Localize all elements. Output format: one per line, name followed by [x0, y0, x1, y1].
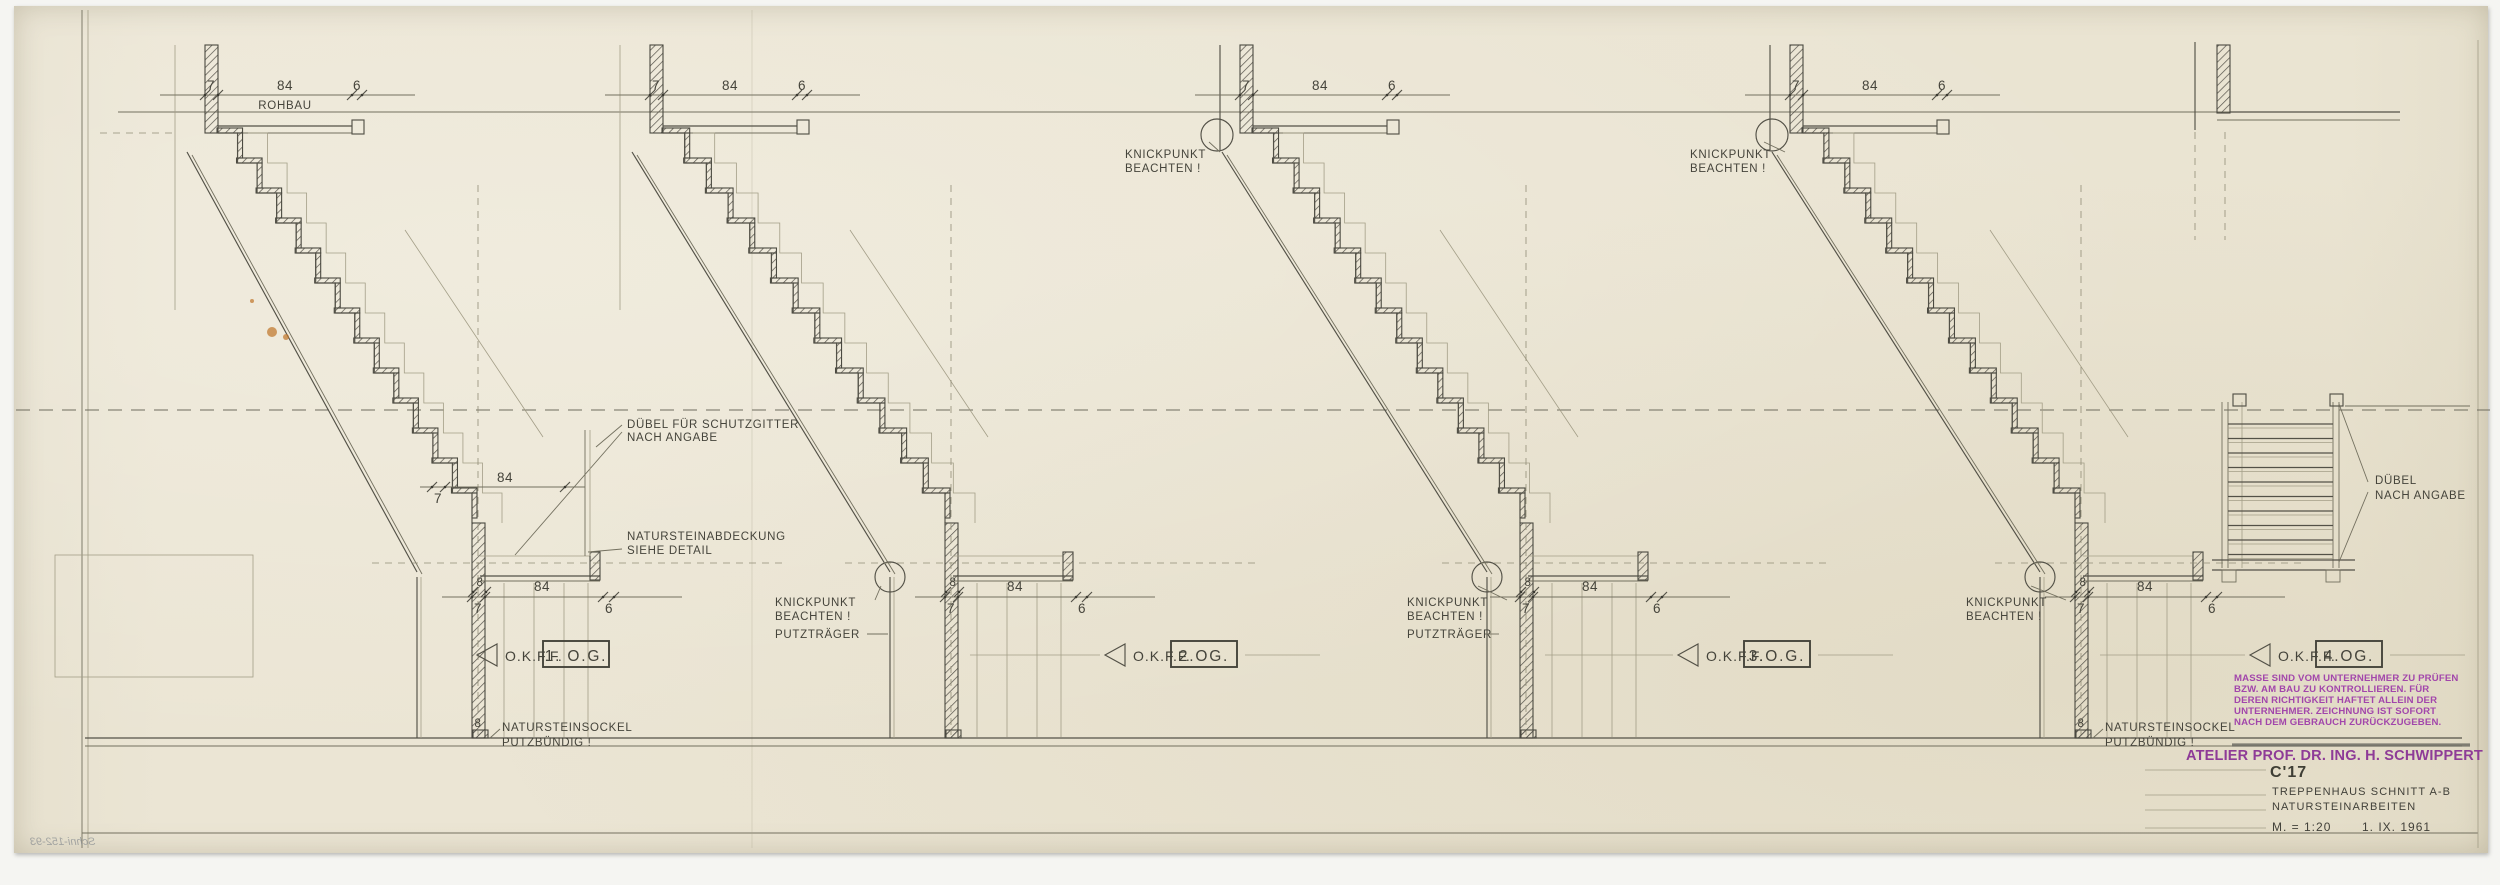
sockel-label: PUTZBÜNDIG !: [2105, 737, 2195, 749]
dim-6: 6: [1938, 78, 1946, 93]
abdeckung-label: SIEHE DETAIL: [627, 545, 713, 557]
okff-marker: O.K.F.F.1. O.G.: [477, 641, 609, 667]
dim-6: 6: [798, 78, 806, 93]
reference-lines: [16, 112, 2490, 828]
dim-7: 7: [474, 601, 482, 616]
notice-line: NACH DEM GEBRAUCH ZURÜCKZUGEBEN.: [2234, 718, 2486, 729]
staircase-section-drawing: 7846ROHBAU78468O.K.F.F.1. O.G.NATURSTEIN…: [0, 0, 2500, 885]
dim-7: 7: [2077, 601, 2085, 616]
knickpunkt-label: KNICKPUNKT: [1125, 149, 1206, 161]
knickpunkt-label: KNICKPUNKT: [1690, 149, 1771, 161]
dim-8: 8: [474, 718, 481, 730]
floor-label: 3.O.G.: [1749, 648, 1805, 665]
putztraeger-label: PUTZTRÄGER: [1407, 629, 1492, 641]
sockel-label: NATURSTEINSOCKEL: [502, 722, 632, 734]
drawing-subtitle: NATURSTEINARBEITEN: [2272, 801, 2416, 813]
dim-84: 84: [1007, 579, 1023, 594]
knickpunkt-label: KNICKPUNKT: [1407, 597, 1488, 609]
contractor-notice-stamp: MASSE SIND VOM UNTERNEHMER ZU PRÜFEN BZW…: [2234, 674, 2486, 729]
dim-7: 7: [1792, 78, 1800, 93]
top-right-wall-corner: [2195, 42, 2470, 406]
drawing-title: TREPPENHAUS SCHNITT A-B: [2272, 786, 2451, 798]
duebel-angabe-label: NACH ANGABE: [2375, 490, 2466, 502]
rohbau-label: ROHBAU: [258, 100, 311, 112]
dim-84: 84: [1312, 78, 1328, 93]
dim-7: 7: [1242, 78, 1250, 93]
notice-line: UNTERNEHMER. ZEICHNUNG IST SOFORT: [2234, 707, 2486, 718]
paper-stains: [250, 299, 289, 340]
dim-6: 6: [353, 78, 361, 93]
floor-label: 2.OG.: [1179, 648, 1229, 665]
dim-6: 6: [605, 601, 613, 616]
dim-84: 84: [2137, 579, 2153, 594]
knickpunkt-label: BEACHTEN !: [1966, 611, 2042, 623]
scanned-drawing-sheet: 7846ROHBAU78468O.K.F.F.1. O.G.NATURSTEIN…: [0, 0, 2500, 885]
dim-8: 8: [2077, 718, 2084, 730]
knickpunkt-label: BEACHTEN !: [1125, 163, 1201, 175]
dim-84: 84: [277, 78, 293, 93]
dim-84: 84: [497, 470, 513, 485]
drawing-number: C'17: [2270, 764, 2307, 782]
drawing-scale: M. = 1:20: [2272, 820, 2331, 834]
duebel-angabe-label: DÜBEL: [2375, 475, 2417, 487]
knickpunkt-label: BEACHTEN !: [775, 611, 851, 623]
dim-7: 7: [207, 78, 215, 93]
sockel-label: NATURSTEINSOCKEL: [2105, 722, 2235, 734]
stair-panel-2: 784678468O.K.F.F.2.OG.KNICKPUNKTBEACHTEN…: [605, 45, 1320, 738]
dim-84: 84: [1862, 78, 1878, 93]
stair-panel-4: 784678468O.K.F.F.4.OG.NATURSTEINSOCKELPU…: [1690, 45, 2465, 749]
drawing-date: 1. IX. 1961: [2362, 820, 2431, 834]
knickpunkt-label: BEACHTEN !: [1407, 611, 1483, 623]
dim-6: 6: [1388, 78, 1396, 93]
floor-label: 4.OG.: [2324, 648, 2374, 665]
sockel-label: PUTZBÜNDIG !: [502, 737, 592, 749]
dim-7: 7: [1522, 601, 1530, 616]
stain: [250, 299, 254, 303]
knickpunkt-label: BEACHTEN !: [1690, 163, 1766, 175]
stain: [283, 334, 289, 340]
knickpunkt-label: KNICKPUNKT: [775, 597, 856, 609]
dim-7: 7: [434, 491, 442, 506]
dim-84: 84: [722, 78, 738, 93]
dim-7: 7: [947, 601, 955, 616]
okff-marker: O.K.F.F.2.OG.: [970, 641, 1320, 667]
dim-6: 6: [1653, 601, 1661, 616]
okff-marker: O.K.F.F.4.OG.: [2100, 641, 2465, 667]
duebel-schutzgitter-label: NACH ANGABE: [627, 432, 718, 444]
knickpunkt-label: KNICKPUNKT: [1966, 597, 2047, 609]
dim-6: 6: [1078, 601, 1086, 616]
dim-6: 6: [2208, 601, 2216, 616]
atelier-stamp: ATELIER PROF. DR. ING. H. SCHWIPPERT: [2186, 748, 2486, 764]
panel1-detail-annotations: DÜBEL FÜR SCHUTZGITTERNACH ANGABENATURST…: [55, 419, 799, 677]
duebel-schutzgitter-label: DÜBEL FÜR SCHUTZGITTER: [627, 419, 799, 431]
pencil-note: Schni-152-93: [30, 836, 95, 848]
dim-7: 7: [652, 78, 660, 93]
stain: [267, 327, 277, 337]
okff-marker: O.K.F.F.3.O.G.: [1545, 641, 1893, 667]
protective-grille: DÜBELNACH ANGABE: [2212, 394, 2466, 582]
floor-label: 1. O.G.: [545, 648, 608, 665]
knick-circle: [1201, 119, 1233, 151]
dim-84: 84: [534, 579, 550, 594]
dim-84: 84: [1582, 579, 1598, 594]
abdeckung-label: NATURSTEINABDECKUNG: [627, 531, 786, 543]
putztraeger-label: PUTZTRÄGER: [775, 629, 860, 641]
